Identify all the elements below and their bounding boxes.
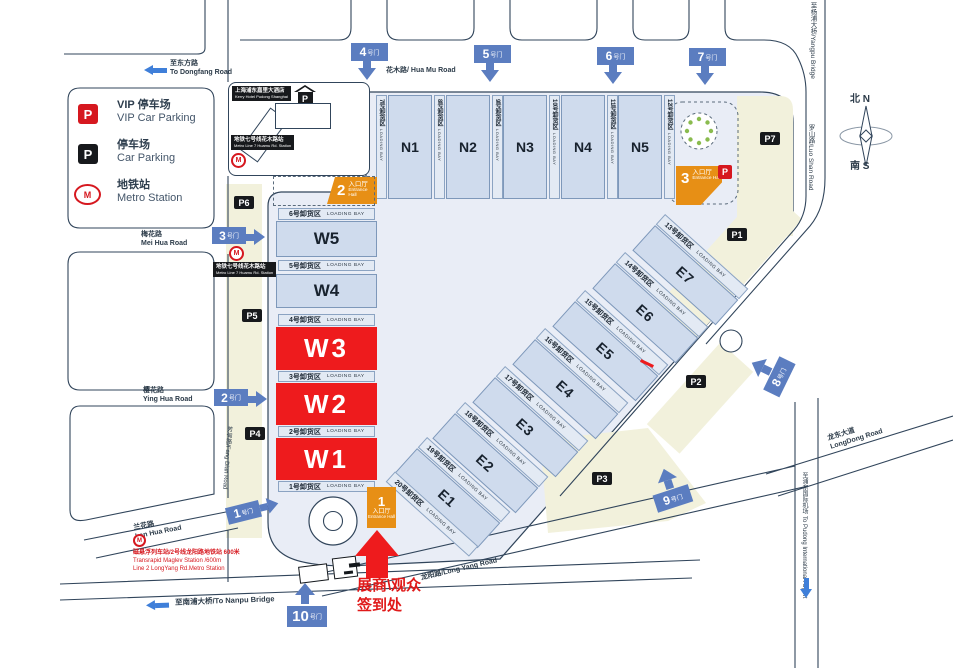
gate-10: 10号门 xyxy=(287,606,327,627)
gate-6: 6号门 xyxy=(597,47,634,65)
road-label-luoshan: 罗山路/Luo Shan Road xyxy=(806,124,815,198)
metro-icon-gate3: M xyxy=(229,246,244,261)
entrance2-dashed-zone xyxy=(273,176,375,206)
gate-7: 7号门 xyxy=(689,48,726,66)
gate-2: 2号门 xyxy=(214,389,248,406)
metro-station-icon: M xyxy=(74,184,101,205)
gate-4-arrow-icon xyxy=(358,61,376,80)
hall-n3: N3 xyxy=(503,95,547,199)
parking-p6: P6 xyxy=(234,196,254,209)
checkin-arrow-stem xyxy=(366,556,388,578)
loading-bay-12: 12号卸货区LOADING BAY xyxy=(664,95,675,199)
loading-bay-4: 4号卸货区LOADING BAY xyxy=(278,314,375,326)
hall-w1: W1 xyxy=(276,438,377,480)
parking-p2: P2 xyxy=(686,375,706,388)
vip-parking-icon: P xyxy=(78,104,98,124)
registration-building xyxy=(298,563,329,583)
road-label-meihua: 梅花路Mei Hua Road xyxy=(141,230,187,248)
gate-10-arrow-icon xyxy=(294,583,316,604)
metro-line7-label-hotel: 地铁七号线花木路站Metro Line 7 Huamu Rd. Station xyxy=(231,135,294,150)
kerry-hotel-block: 上海浦东嘉里大酒店Kerry Hotel Pudong Shanghai P 地… xyxy=(228,82,370,176)
loading-bay-8: 8号卸货区LOADING BAY xyxy=(434,95,445,199)
compass-south-label: 南 S xyxy=(850,162,869,171)
gate-5-arrow-icon xyxy=(481,63,499,82)
road-label-yangpu: 至杨浦大桥/Yangpu Bridge xyxy=(808,2,817,58)
hall-n4: N4 xyxy=(561,95,605,199)
loading-bay-6: 6号卸货区LOADING BAY xyxy=(278,208,375,220)
gate-7-arrow-icon xyxy=(696,66,714,85)
gate8-circle xyxy=(720,330,742,352)
kerry-hotel-label: 上海浦东嘉里大酒店Kerry Hotel Pudong Shanghai xyxy=(232,86,291,101)
legend-vip-parking: VIP 停车场 VIP Car Parking xyxy=(117,99,196,125)
legend-car-parking: 停车场 Car Parking xyxy=(117,139,175,165)
parking-p5: P5 xyxy=(242,309,262,322)
hotel-annex-shape xyxy=(275,103,331,129)
hall-w3: W3 xyxy=(276,327,377,370)
hall-n5: N5 xyxy=(618,95,662,199)
loading-bay-10: 10号卸货区LOADING BAY xyxy=(549,95,560,199)
hall-w5: W5 xyxy=(276,221,377,257)
loading-bay-7: 7号卸货区LOADING BAY xyxy=(376,95,387,199)
loading-bay-1: 1号卸货区LOADING BAY xyxy=(278,481,375,492)
metro-icon-hotel: M xyxy=(231,153,246,168)
road-label-dongfang: 至东方路To Dongfang Road xyxy=(170,59,232,77)
parking-p1: P1 xyxy=(727,228,747,241)
road-label-huamu: 花木路/ Hua Mu Road xyxy=(386,66,456,75)
loading-bay-5: 5号卸货区LOADING BAY xyxy=(278,260,375,271)
entrance-hall-1: 1 入口厅 Entrance Hall xyxy=(367,487,396,528)
legend-metro-station: 地铁站 Metro Station xyxy=(117,179,182,205)
parking-icon: P xyxy=(78,144,98,164)
airport-arrow-icon xyxy=(800,578,813,598)
to-dongfang-arrow-icon xyxy=(144,65,167,75)
road-label-airport: 至浦东国际机场To Pudong International Airport xyxy=(799,472,808,576)
sniec-venue-map: P VIP 停车场 VIP Car Parking P 停车场 Car Park… xyxy=(0,0,953,668)
gate-4: 4号门 xyxy=(351,43,388,61)
gate-5: 5号门 xyxy=(474,45,511,63)
maglev-metro-icon: M xyxy=(133,534,146,547)
metro-line7-label-gate3: 地铁七号线花木路站Metro Line 7 Huamu Rd. Station xyxy=(213,262,276,277)
parking-p3: P3 xyxy=(592,472,612,485)
gate-2-arrow-icon xyxy=(248,391,267,407)
gate-3: 3号门 xyxy=(212,227,246,244)
parking-p4: P4 xyxy=(245,427,265,440)
loading-bay-11: 11号卸货区LOADING BAY xyxy=(607,95,618,199)
hall-n1: N1 xyxy=(388,95,432,199)
loading-bay-3: 3号卸货区LOADING BAY xyxy=(278,371,375,382)
checkin-note: 展商\观众签到处 xyxy=(357,576,421,616)
to-nanpu-arrow-icon xyxy=(146,600,169,611)
hall-w4: W4 xyxy=(276,274,377,308)
gate-3-arrow-icon xyxy=(246,229,265,245)
loading-bay-9: 9号卸货区LOADING BAY xyxy=(492,95,503,199)
road-label-yinghua: 樱花路Ying Hua Road xyxy=(143,386,193,404)
roundabout-inner xyxy=(324,512,343,531)
loading-bay-2: 2号卸货区LOADING BAY xyxy=(278,426,375,437)
maglev-note: 磁悬浮列车站/2号线龙阳路地铁站 600米 Transrapid Maglev … xyxy=(133,549,240,573)
registration-building-2 xyxy=(332,556,358,580)
hall-w2: W2 xyxy=(276,383,377,425)
compass-rose xyxy=(840,106,892,166)
vip-parking-tag-entrance3: P xyxy=(718,165,732,179)
gate-6-arrow-icon xyxy=(604,65,622,84)
parking-p7: P7 xyxy=(760,132,780,145)
compass-north-label: 北 N xyxy=(850,95,870,104)
hall-n2: N2 xyxy=(446,95,490,199)
